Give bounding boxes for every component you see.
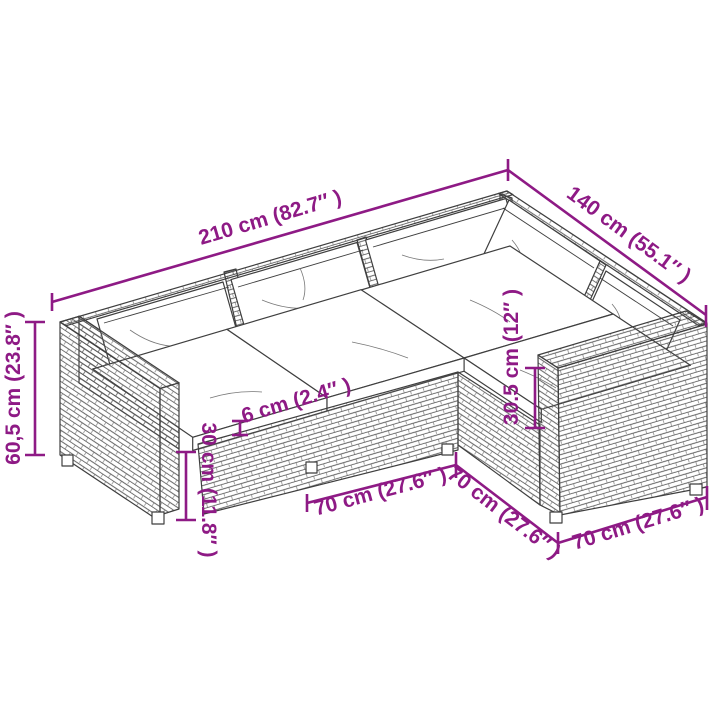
dim-60-5 (25, 322, 45, 455)
dim-60-5-label: 60,5 cm (23.8″ ) (2, 311, 25, 465)
dim-30-label: 30 cm (11.8″ ) (197, 423, 220, 558)
dimension-diagram: 210 cm (82.7″ ) 140 cm (55.1″ ) 60,5 cm … (0, 0, 720, 720)
dim-30-5-label: 30.5 cm (12″ ) (500, 289, 523, 425)
sofa-line-art (60, 191, 707, 524)
diagram-svg: 210 cm (82.7″ ) 140 cm (55.1″ ) 60,5 cm … (0, 0, 720, 720)
